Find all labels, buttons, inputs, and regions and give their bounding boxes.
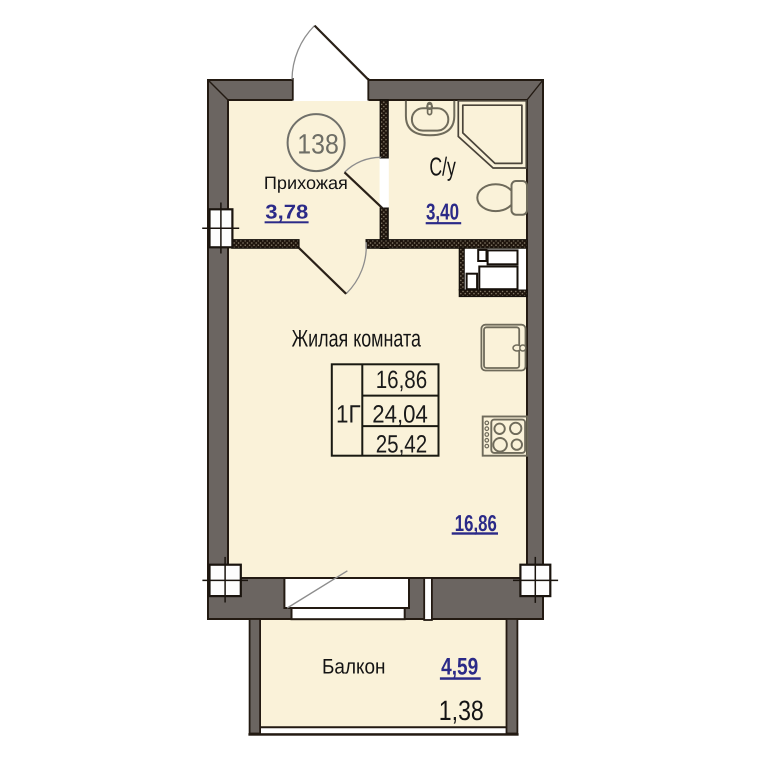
svg-text:16,86: 16,86	[376, 366, 428, 394]
svg-text:138: 138	[297, 128, 339, 159]
svg-text:24,04: 24,04	[372, 401, 428, 429]
svg-text:25,42: 25,42	[376, 430, 428, 458]
svg-text:1Г: 1Г	[336, 401, 361, 429]
svg-text:С/у: С/у	[429, 151, 456, 181]
svg-text:Жилая комната: Жилая комната	[292, 325, 422, 352]
svg-text:16,86: 16,86	[455, 510, 497, 536]
svg-text:1,38: 1,38	[439, 695, 484, 726]
svg-text:4,59: 4,59	[441, 654, 478, 681]
svg-text:Прихожая: Прихожая	[264, 173, 348, 193]
svg-text:3,78: 3,78	[265, 201, 308, 223]
svg-text:3,40: 3,40	[426, 199, 459, 225]
svg-text:Балкон: Балкон	[322, 655, 386, 678]
